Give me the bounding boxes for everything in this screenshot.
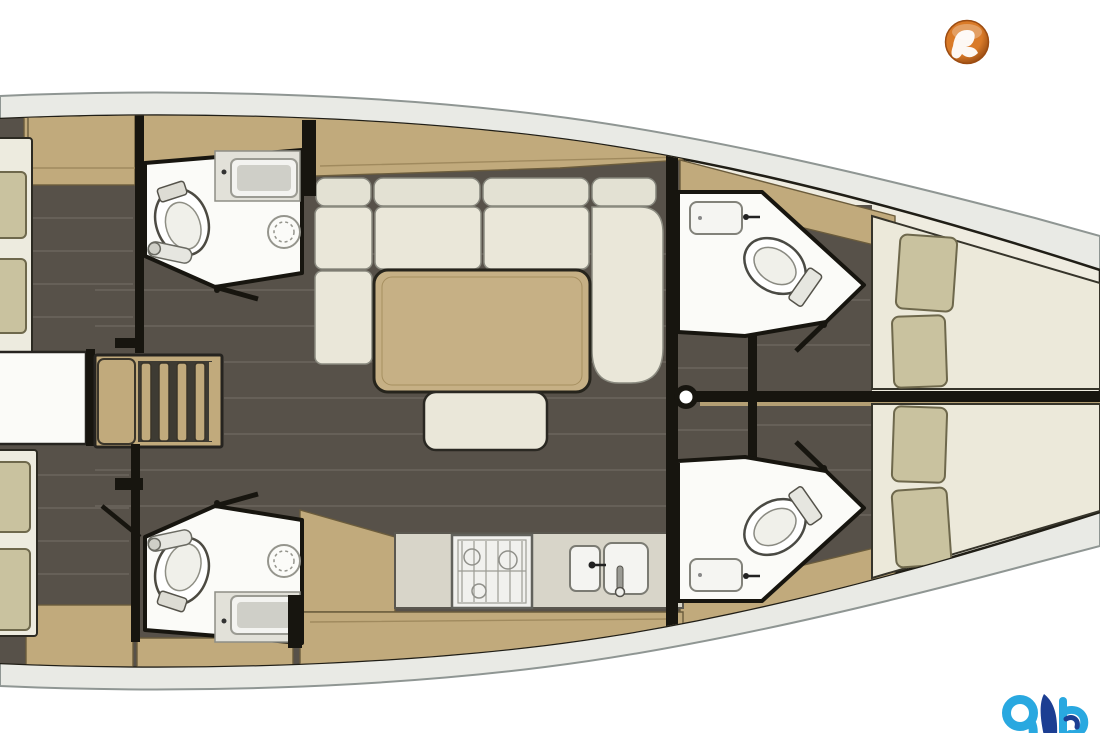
step-tread [195, 363, 205, 441]
berth-pillow [892, 406, 948, 483]
berth-pillow [895, 234, 957, 312]
engine-box [0, 352, 86, 444]
sink-lever [617, 566, 623, 590]
head-sink [690, 559, 742, 591]
berth-cushion [0, 549, 30, 630]
step-tread [177, 363, 187, 441]
mast-post [680, 391, 693, 404]
galley [395, 533, 683, 608]
door-hinge [214, 500, 220, 506]
bulkhead-segment [302, 120, 316, 196]
step-tread [159, 363, 169, 441]
door-hinge [214, 287, 220, 293]
sink-lever-knob [616, 588, 625, 597]
yacht-floorplan-page [0, 0, 1100, 733]
aft-port-cabin-wall [135, 113, 144, 353]
berth-cushion [0, 259, 26, 333]
sink-basin-large [604, 543, 648, 594]
vanity-basin-well [237, 602, 291, 628]
vanity-faucet [222, 619, 227, 624]
interior [0, 86, 1100, 690]
head-drain [698, 573, 702, 577]
head-drain [698, 216, 702, 220]
sink-basin-small [570, 546, 600, 591]
vanity-faucet [222, 170, 227, 175]
vanity-basin-well [237, 165, 291, 191]
head-sink [690, 202, 742, 234]
aft-port-locker [28, 114, 135, 185]
backrest-cushion [483, 178, 589, 206]
seat-corner-chaise [592, 207, 663, 383]
step-tread [141, 363, 151, 441]
galley-stove [452, 535, 532, 608]
saloon-bench [424, 392, 547, 450]
berth-pillow [892, 315, 947, 388]
orange-globe-bird-badge-icon [946, 21, 989, 64]
door-hardware [115, 478, 143, 490]
berth-pillow [891, 487, 951, 568]
door-hardware [115, 338, 143, 348]
blue-yb-monogram-icon [1007, 694, 1085, 733]
saloon-table [374, 270, 590, 392]
step-tread-wide [98, 359, 135, 444]
backrest-cushion [374, 178, 480, 206]
companionway-steps [95, 355, 222, 447]
step-tread-cap [209, 362, 219, 441]
galley-sink [570, 543, 648, 597]
seat-cushion [484, 207, 589, 269]
seat-cushion [375, 207, 481, 269]
monogram-ring-tail [1031, 722, 1033, 733]
bulkhead-segment [288, 595, 302, 648]
monogram-petal [1041, 694, 1058, 733]
door-hinge [821, 465, 827, 471]
seat-cushion [315, 271, 372, 364]
seat-cushion [315, 207, 372, 269]
backrest-cushion [316, 178, 371, 206]
floorplan-svg [0, 0, 1100, 733]
mast [674, 385, 698, 409]
settee-backrests [316, 178, 656, 206]
berth-cushion [0, 172, 26, 238]
door-hinge [821, 322, 827, 328]
berth-cushion [0, 462, 30, 532]
backrest-cushion [592, 178, 656, 206]
monogram-b-inner [1066, 718, 1077, 727]
aft-stbd-cabin-wall [131, 444, 140, 642]
